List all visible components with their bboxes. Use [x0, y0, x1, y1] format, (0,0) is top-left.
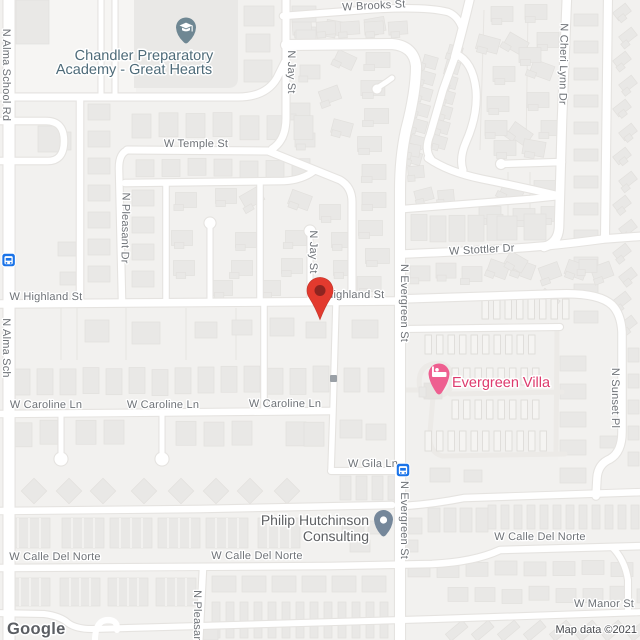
svg-text:W Caroline Ln: W Caroline Ln: [249, 398, 321, 410]
svg-text:W Highland St: W Highland St: [10, 291, 83, 303]
svg-text:N Alma School Rd: N Alma School Rd: [0, 29, 12, 121]
svg-text:N Pleasant: N Pleasant: [191, 590, 203, 640]
svg-text:W Gila Ln: W Gila Ln: [348, 458, 398, 470]
svg-text:W Caroline Ln: W Caroline Ln: [127, 399, 199, 411]
svg-text:N Jay St: N Jay St: [285, 50, 297, 93]
svg-text:W Calle Del Norte: W Calle Del Norte: [494, 531, 585, 543]
svg-text:N Alma Sch: N Alma Sch: [0, 318, 12, 377]
svg-text:Map data ©2021: Map data ©2021: [556, 624, 638, 636]
svg-text:W Calle Del Norte: W Calle Del Norte: [211, 550, 302, 562]
svg-text:W Manor St: W Manor St: [574, 598, 634, 610]
svg-text:W Temple St: W Temple St: [164, 138, 228, 150]
svg-text:W Caroline Ln: W Caroline Ln: [10, 399, 82, 411]
svg-text:Academy - Great Hearts: Academy - Great Hearts: [56, 62, 212, 78]
svg-text:N Sunset Pl: N Sunset Pl: [609, 368, 621, 428]
svg-text:N Pleasant Dr: N Pleasant Dr: [118, 192, 131, 263]
svg-text:Evergreen Villa: Evergreen Villa: [452, 375, 551, 391]
svg-text:W Calle Del Norte: W Calle Del Norte: [9, 551, 100, 563]
svg-text:Consulting: Consulting: [303, 528, 369, 544]
svg-text:N Jay St: N Jay St: [307, 230, 319, 273]
svg-text:N Cheri Lynn Dr: N Cheri Lynn Dr: [556, 23, 569, 105]
svg-text:N Evergreen St: N Evergreen St: [398, 264, 410, 342]
svg-text:Philip Hutchinson: Philip Hutchinson: [261, 512, 369, 528]
svg-text:Google: Google: [7, 620, 66, 638]
svg-text:N Evergreen St: N Evergreen St: [398, 481, 410, 559]
